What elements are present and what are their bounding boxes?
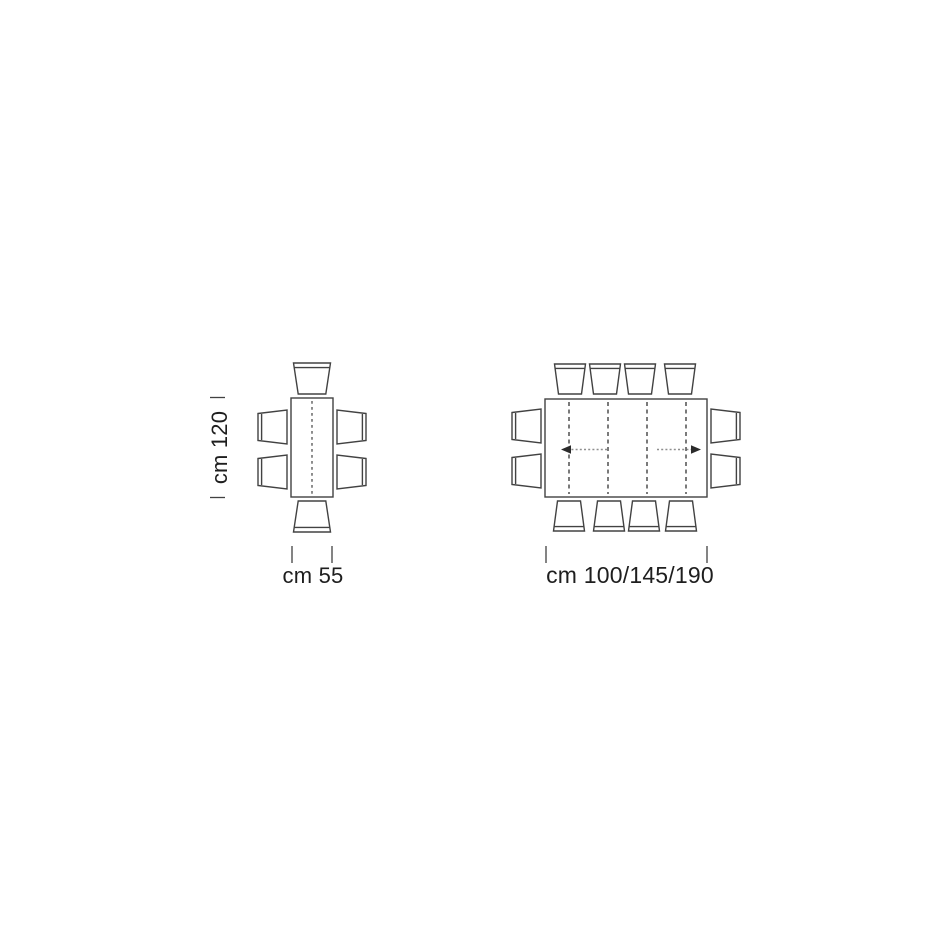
chair <box>666 501 697 531</box>
width-dimension-label: cm 100/145/190 <box>546 562 714 588</box>
chair <box>258 410 287 444</box>
chair <box>711 454 740 488</box>
large-table-diagram: cm 100/145/190 <box>512 364 740 588</box>
chair <box>554 501 585 531</box>
chair <box>594 501 625 531</box>
chair <box>512 454 541 488</box>
chair <box>665 364 696 394</box>
depth-dimension-label: cm 120 <box>207 411 232 484</box>
chair <box>294 363 331 394</box>
width-dimension-label: cm 55 <box>283 563 344 588</box>
chair <box>590 364 621 394</box>
chair <box>555 364 586 394</box>
chair <box>512 409 541 443</box>
chair <box>337 410 366 444</box>
small-table-diagram: cm 120 cm 55 <box>207 363 366 588</box>
chair <box>625 364 656 394</box>
chair <box>711 409 740 443</box>
furniture-dimension-diagram: cm 120 cm 55 <box>0 0 950 950</box>
chair <box>258 455 287 489</box>
chair <box>337 455 366 489</box>
chair <box>629 501 660 531</box>
table-top <box>291 398 333 497</box>
chair <box>294 501 331 532</box>
